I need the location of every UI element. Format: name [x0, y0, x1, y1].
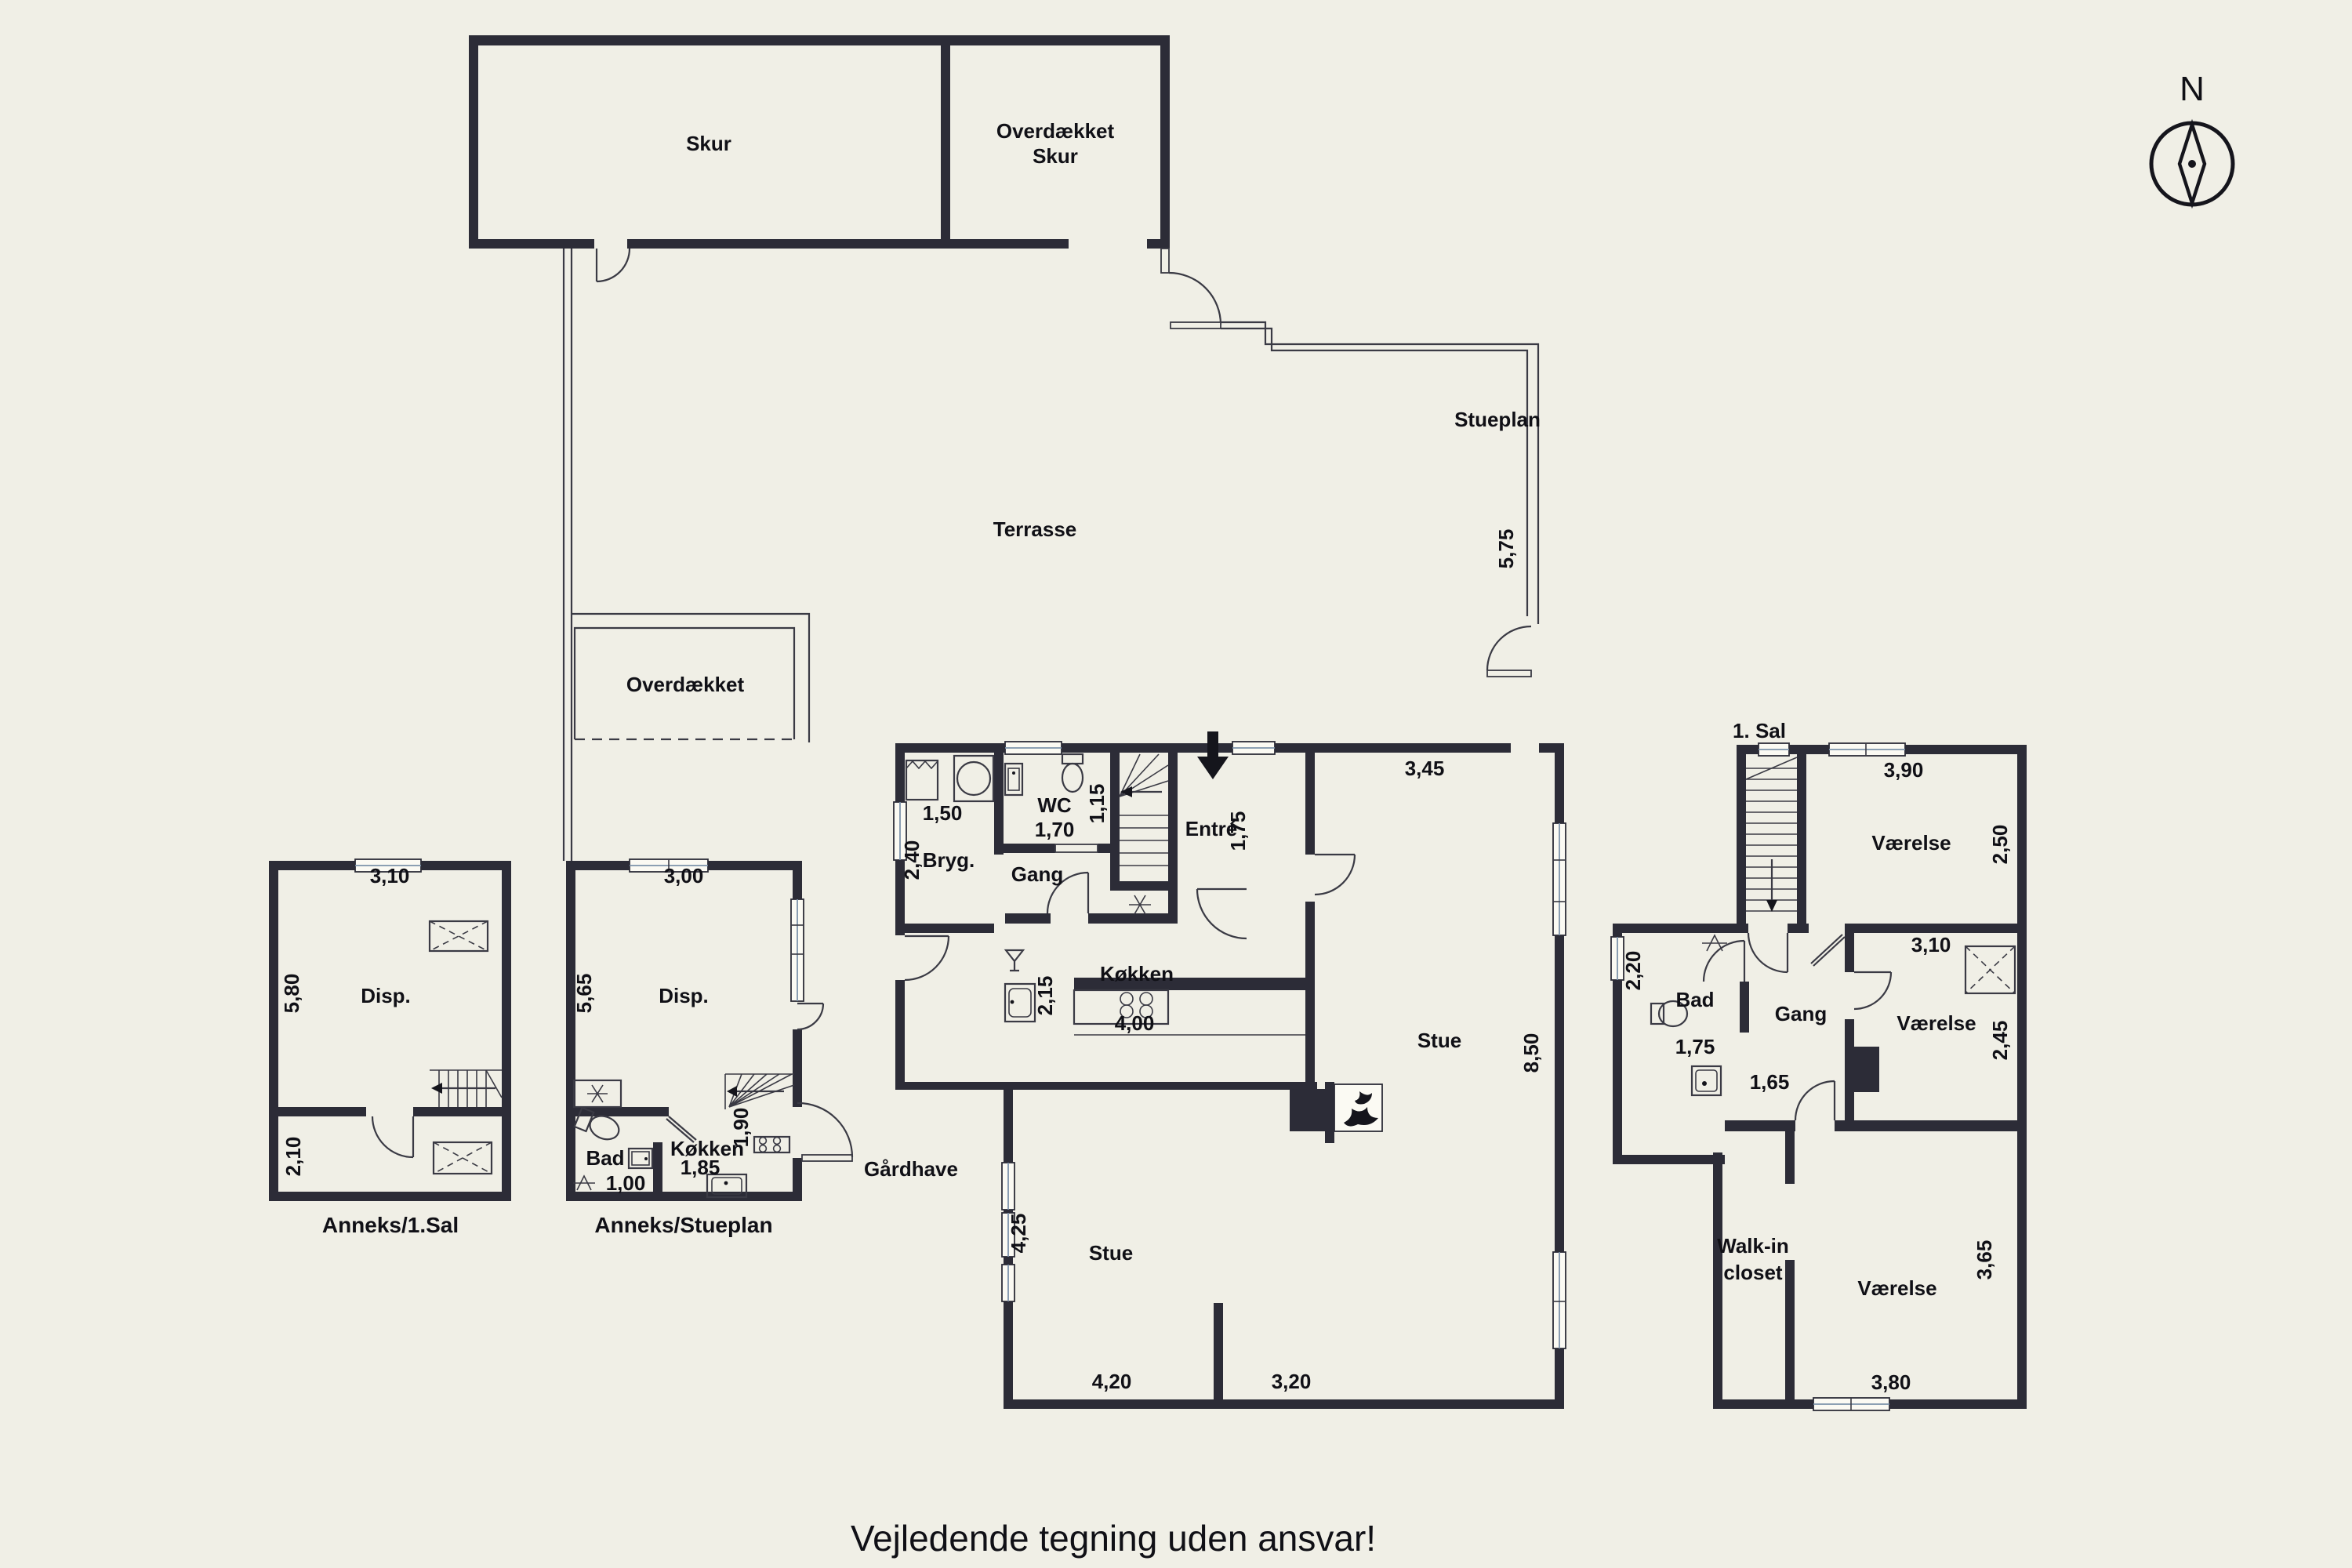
stairs-down-arrow-icon [1766, 900, 1777, 912]
dim-1-75: 1,75 [1226, 811, 1250, 851]
toilet-icon [1062, 754, 1083, 764]
burner-icon [1120, 993, 1133, 1005]
drain-icon [1006, 950, 1023, 971]
anneks1-labels: 3,10 5,80 Disp. 2,10 Anneks/1.Sal [280, 864, 459, 1237]
anneks1-skylights [430, 921, 492, 1174]
stairs-arrow-icon [727, 1086, 737, 1097]
walkin-label-1: Walk-in [1717, 1234, 1788, 1258]
floor-plan-page: Skur Overdækket Skur Overdækket Terrasse… [0, 0, 2352, 1568]
anneks-first-floor: 3,10 5,80 Disp. 2,10 Anneks/1.Sal [269, 859, 511, 1237]
anneks1-door [372, 1116, 413, 1157]
dim-1-00: 1,00 [606, 1171, 646, 1195]
sal-stairs [1746, 757, 1797, 912]
dim-2-40: 2,40 [900, 840, 924, 880]
terrasse-label: Terrasse [993, 517, 1077, 541]
main-house: Bryg. 1,50 2,40 WC 1,70 1,15 Gang Entré … [894, 731, 1566, 1409]
first-floor: 1. Sal [1611, 719, 2027, 1410]
dim-2-15: 2,15 [1033, 976, 1057, 1016]
bryggers-label: Bryg. [923, 848, 975, 872]
skylight-icon [1965, 946, 2015, 993]
overdaekket-skur-label-1: Overdækket [996, 119, 1115, 143]
gang2-label: Gang [1775, 1002, 1827, 1025]
dim-5-80: 5,80 [280, 974, 303, 1014]
gaardhave-label: Gårdhave [864, 1157, 958, 1181]
anneks0-caption: Anneks/Stueplan [594, 1213, 772, 1237]
sal-labels: 3,90 Værelse 2,50 2,20 Bad 1,75 Gang 1,6… [1621, 758, 2012, 1394]
dim-1-65: 1,65 [1750, 1070, 1790, 1094]
anneks0-stairs [725, 1074, 794, 1109]
wc-label: WC [1037, 793, 1072, 817]
sal-label: 1. Sal [1733, 719, 1786, 742]
stue2-label: Stue [1089, 1241, 1133, 1265]
compass-center-dot [2188, 160, 2196, 168]
disclaimer-text: Vejledende tegning uden ansvar! [851, 1518, 1376, 1559]
dim-5-75: 5,75 [1494, 529, 1518, 569]
dim-3-90: 3,90 [1884, 758, 1924, 782]
koekken-label: Køkken [1100, 962, 1174, 985]
stueplan-label: Stueplan [1454, 408, 1541, 431]
burner-icon [1140, 993, 1152, 1005]
chimney-shaft [1845, 1047, 1879, 1092]
anneks1-caption: Anneks/1.Sal [322, 1213, 459, 1237]
skur-door [597, 249, 630, 281]
dim-3-20: 3,20 [1272, 1370, 1312, 1393]
dim-1-50: 1,50 [923, 801, 963, 825]
north-label: N [2180, 70, 2205, 108]
dim-3-10: 3,10 [1911, 933, 1951, 956]
dim-2-50: 2,50 [1988, 825, 2012, 865]
freezer-icon [587, 1085, 608, 1102]
overdaekket-skur-label-2: Skur [1033, 144, 1078, 168]
anneks0-windows [630, 859, 804, 1001]
terrasse-house-door [1487, 626, 1531, 677]
overdaekket-terrace: Overdækket [572, 614, 809, 742]
dim-4-25: 4,25 [1007, 1214, 1030, 1254]
dim-3-10b: 3,10 [370, 864, 410, 887]
freezer-icon [1129, 895, 1151, 914]
bryggers-fixtures [906, 756, 993, 801]
dim-3-00: 3,00 [664, 864, 704, 887]
compass: N [2151, 70, 2233, 205]
dim-4-20: 4,20 [1092, 1370, 1132, 1393]
sal-doors [1704, 933, 1891, 1120]
stairs-arrow-icon [431, 1083, 442, 1094]
terrasse-north-line-outer [1221, 322, 1538, 624]
sal-bad-fixtures [1651, 935, 1727, 1095]
terrasse-area: Overdækket Terrasse Stueplan 5,75 [564, 249, 1541, 861]
anneks-ground-floor: 3,00 5,65 Disp. Bad 1,00 Køkken 1,85 1,9… [566, 859, 852, 1237]
dim-1-15: 1,15 [1085, 784, 1109, 824]
bad2-label: Bad [586, 1146, 624, 1170]
gang-label: Gang [1011, 862, 1063, 886]
dim-3-65: 3,65 [1973, 1240, 1996, 1280]
skur-right-door [1161, 249, 1221, 328]
terrasse-north-line-inner [1221, 328, 1527, 616]
fireplace [1290, 1084, 1382, 1131]
dim-1-90: 1,90 [729, 1108, 753, 1148]
wc-fixtures [1005, 754, 1083, 795]
chimney [1290, 1089, 1327, 1131]
dim-2-20: 2,20 [1621, 951, 1645, 991]
vaerelse-se-label: Værelse [1857, 1276, 1936, 1300]
anneks1-stairs [430, 1070, 502, 1107]
entrance-arrow-icon [1197, 731, 1229, 779]
dim-1-70: 1,70 [1035, 818, 1075, 841]
skur-building: Skur Overdækket Skur [469, 35, 1221, 328]
stueplan-stairs [1120, 754, 1168, 866]
disp2-label: Disp. [659, 984, 709, 1007]
floor-plan-drawing: Skur Overdækket Skur Overdækket Terrasse… [0, 0, 2352, 1568]
dim-1-75b: 1,75 [1675, 1035, 1715, 1058]
dim-2-10: 2,10 [281, 1137, 305, 1177]
slope-marker-icon [1702, 935, 1727, 951]
walkin-label-2: closet [1723, 1261, 1782, 1284]
dim-5-65: 5,65 [572, 974, 596, 1014]
dim-8-50: 8,50 [1519, 1033, 1543, 1073]
bad-label: Bad [1675, 988, 1714, 1011]
dim-4-00: 4,00 [1115, 1011, 1155, 1035]
skur-label: Skur [686, 132, 731, 155]
overdaekket-label: Overdækket [626, 673, 745, 696]
vaerelse-n-label: Værelse [1871, 831, 1951, 855]
dim-2-45: 2,45 [1988, 1021, 2012, 1061]
stue-label: Stue [1417, 1029, 1461, 1052]
slope-marker-icon [573, 1176, 595, 1190]
anneks0-freezer [574, 1080, 621, 1107]
dim-3-45: 3,45 [1405, 757, 1445, 780]
vaerelse-s-label: Værelse [1896, 1011, 1976, 1035]
disp-label: Disp. [361, 984, 411, 1007]
anneks0-labels: 3,00 5,65 Disp. Bad 1,00 Køkken 1,85 1,9… [572, 864, 773, 1237]
dim-1-85: 1,85 [681, 1156, 720, 1179]
sal-walls [1613, 745, 2027, 1409]
dim-3-80: 3,80 [1871, 1370, 1911, 1394]
